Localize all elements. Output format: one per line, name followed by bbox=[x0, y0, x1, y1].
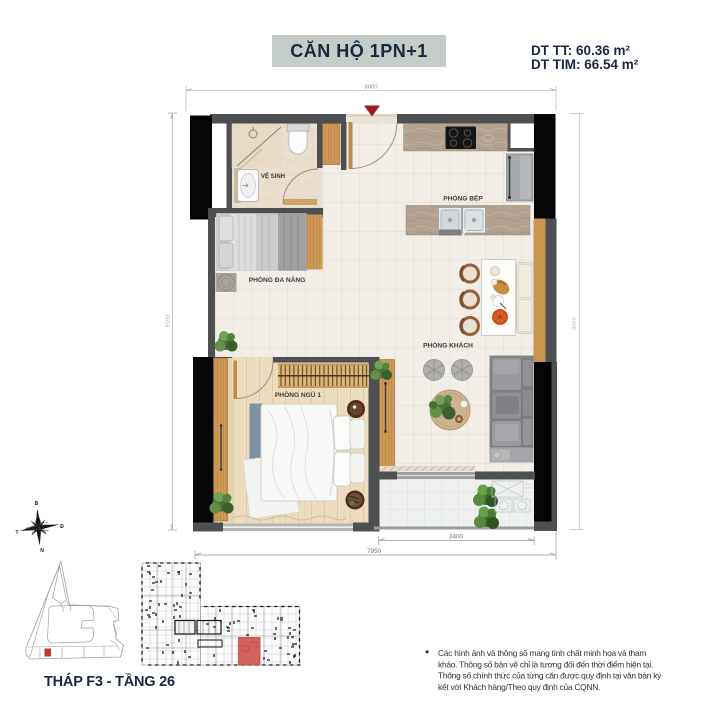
svg-text:9100: 9100 bbox=[166, 315, 172, 328]
svg-text:PHÒNG NGỦ 1: PHÒNG NGỦ 1 bbox=[275, 390, 321, 399]
svg-text:8000: 8000 bbox=[365, 85, 378, 91]
svg-text:khảo. Thông số bản vẽ chỉ là t: khảo. Thông số bản vẽ chỉ là tương đối đ… bbox=[438, 659, 653, 669]
svg-text:9000: 9000 bbox=[572, 317, 578, 330]
svg-text:Đ: Đ bbox=[60, 524, 64, 530]
svg-text:3400: 3400 bbox=[449, 534, 464, 541]
svg-text:N: N bbox=[40, 548, 44, 554]
svg-text:PHÒNG KHÁCH: PHÒNG KHÁCH bbox=[423, 341, 473, 350]
svg-text:VỆ SINH: VỆ SINH bbox=[261, 172, 285, 180]
svg-text:PHÒNG ĐA NĂNG: PHÒNG ĐA NĂNG bbox=[249, 275, 306, 284]
svg-text:B: B bbox=[35, 501, 39, 507]
svg-text:Thông số chính thức của từng c: Thông số chính thức của từng căn được qu… bbox=[438, 671, 662, 681]
svg-text:CĂN HỘ 1PN+1: CĂN HỘ 1PN+1 bbox=[290, 40, 428, 61]
svg-text:DT TT: 60.36 m²: DT TT: 60.36 m² bbox=[531, 43, 631, 58]
svg-text:THÁP F3 - TẦNG 26: THÁP F3 - TẦNG 26 bbox=[44, 673, 175, 690]
svg-text:T: T bbox=[15, 530, 18, 536]
svg-text:kết với Khách hàng/Theo quy đị: kết với Khách hàng/Theo quy định của CQN… bbox=[438, 682, 600, 692]
svg-text:•: • bbox=[425, 645, 429, 659]
svg-text:7950: 7950 bbox=[367, 548, 382, 555]
svg-text:DT TIM: 66.54 m²: DT TIM: 66.54 m² bbox=[531, 57, 639, 72]
svg-text:Các hình ảnh và thông số mang: Các hình ảnh và thông số mang tính chất … bbox=[438, 648, 646, 658]
